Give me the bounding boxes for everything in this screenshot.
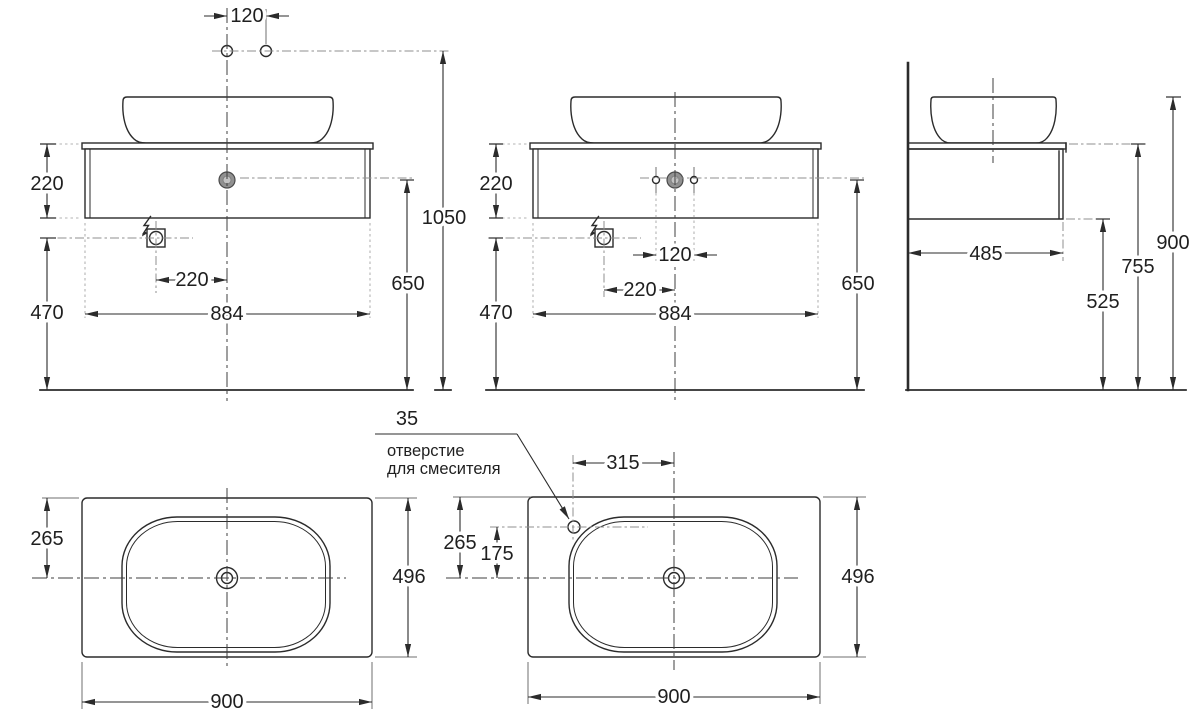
technical-drawing-sheet: 120 220 470 220 884 650 1050 [0, 0, 1200, 715]
dim-label-width: 884 [658, 303, 691, 325]
dim-label-depth: 496 [841, 566, 874, 588]
side-view: 485 525 755 900 [906, 63, 1190, 390]
callout-note-line1: отверстие [387, 442, 465, 460]
dim-label-bottom-height: 525 [1086, 291, 1119, 313]
dim-label-width: 884 [210, 303, 243, 325]
cabinet-side-body [908, 149, 1063, 219]
dim-label-outlet-height: 470 [30, 302, 63, 324]
dim-label-width: 900 [210, 691, 243, 713]
outlet-with-lightning [142, 217, 165, 248]
dim-label-total-height: 900 [1156, 232, 1189, 254]
dim-label-drain-height: 650 [391, 273, 424, 295]
front-view-a: 120 220 470 220 884 650 1050 [30, 5, 466, 401]
front-view-b: 220 470 120 220 884 650 [479, 92, 874, 401]
callout-note-line2: для смесителя [387, 460, 501, 478]
dim-label-center-offset: 265 [30, 528, 63, 550]
dim-label-hole-offset: 315 [606, 452, 639, 474]
dim-label-spacing: 120 [230, 5, 263, 27]
countertop-side [908, 143, 1066, 149]
dim-label-hole-to-center: 175 [480, 543, 513, 565]
dim-label-depth: 485 [969, 243, 1002, 265]
callout-diameter-label: 35 [396, 408, 418, 430]
dim-label-outlet-offset: 220 [175, 269, 208, 291]
dim-label-worktop-height: 755 [1121, 256, 1154, 278]
dim-label-drain-height: 650 [841, 273, 874, 295]
dim-label-tap-spacing: 120 [658, 244, 691, 266]
dim-label-depth: 496 [392, 566, 425, 588]
basin-and-drain [122, 517, 330, 652]
plan-view-a: 265 496 900 [30, 488, 425, 713]
plan-view-b: 35 отверстие для смесителя 315 265 175 4… [375, 408, 875, 708]
dim-label-cabinet-height: 220 [479, 173, 512, 195]
vanity-dimension-drawing: 120 220 470 220 884 650 1050 [0, 0, 1200, 715]
dim-label-outlet-height: 470 [479, 302, 512, 324]
dim-label-cabinet-height: 220 [30, 173, 63, 195]
basin-and-drain [569, 517, 777, 652]
dim-label-width: 900 [657, 686, 690, 708]
aux-dashdot-lines [1063, 144, 1146, 261]
dim-label-outlet-offset: 220 [623, 279, 656, 301]
dim-label-total-height: 1050 [422, 207, 467, 229]
outlet-with-lightning [590, 217, 613, 248]
dim-label-center-offset: 265 [443, 532, 476, 554]
